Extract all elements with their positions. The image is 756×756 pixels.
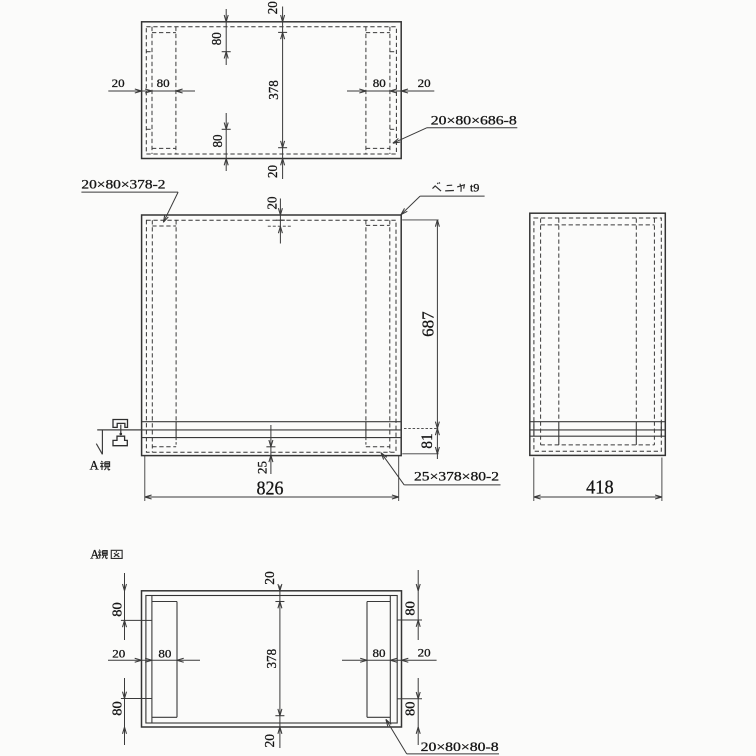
svg-text:20: 20 bbox=[418, 646, 431, 660]
svg-text:20: 20 bbox=[266, 1, 281, 14]
svg-text:20×80×378-2: 20×80×378-2 bbox=[81, 177, 165, 192]
svg-text:80: 80 bbox=[211, 135, 226, 148]
svg-text:80: 80 bbox=[157, 76, 170, 90]
svg-text:20×80×686-8: 20×80×686-8 bbox=[431, 112, 517, 127]
svg-text:25: 25 bbox=[255, 461, 270, 474]
svg-text:25×378×80-2: 25×378×80-2 bbox=[414, 469, 499, 484]
svg-text:378: 378 bbox=[267, 80, 282, 100]
svg-text:20: 20 bbox=[265, 197, 280, 210]
svg-text:20: 20 bbox=[266, 165, 281, 178]
svg-text:80: 80 bbox=[111, 602, 126, 617]
svg-text:687: 687 bbox=[419, 311, 438, 337]
svg-text:378: 378 bbox=[265, 649, 280, 669]
svg-text:t9: t9 bbox=[470, 180, 479, 194]
svg-text:80: 80 bbox=[210, 32, 225, 45]
svg-text:80: 80 bbox=[403, 601, 418, 616]
svg-text:80: 80 bbox=[111, 701, 126, 716]
svg-text:20: 20 bbox=[418, 76, 431, 90]
svg-text:418: 418 bbox=[586, 477, 614, 499]
svg-text:80: 80 bbox=[158, 646, 171, 660]
svg-text:20: 20 bbox=[112, 646, 125, 660]
svg-text:80: 80 bbox=[373, 76, 386, 90]
svg-text:20: 20 bbox=[263, 734, 278, 748]
svg-text:20: 20 bbox=[263, 571, 278, 585]
svg-text:826: 826 bbox=[257, 478, 284, 500]
svg-text:81: 81 bbox=[419, 433, 436, 449]
svg-text:A: A bbox=[90, 459, 99, 473]
svg-text:80: 80 bbox=[403, 702, 418, 717]
svg-text:20: 20 bbox=[112, 76, 125, 90]
svg-text:A: A bbox=[90, 548, 99, 562]
svg-text:80: 80 bbox=[373, 646, 386, 660]
svg-text:20×80×80-8: 20×80×80-8 bbox=[421, 739, 499, 754]
